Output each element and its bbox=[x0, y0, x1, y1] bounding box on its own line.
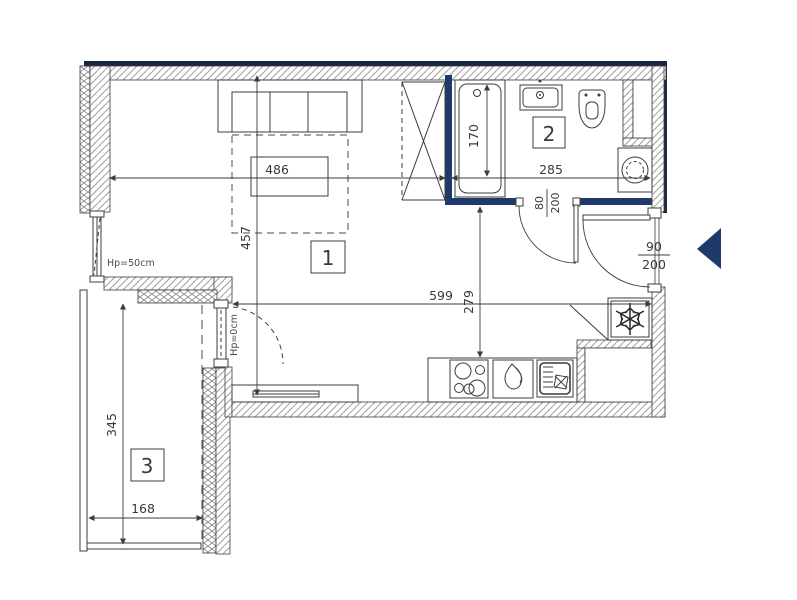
entrance-door-height: 200 bbox=[642, 257, 666, 272]
room-label-2: 2 bbox=[543, 122, 556, 146]
wall-left-insulation bbox=[80, 66, 90, 213]
wall-top bbox=[90, 66, 666, 80]
shaft-niche bbox=[585, 348, 652, 402]
walls bbox=[80, 61, 667, 554]
floor-plan-drawing: 1 2 3 486 285 599 168 457 170 279 345 Hp… bbox=[0, 0, 797, 600]
entrance-arrow-icon bbox=[697, 228, 721, 269]
window-sill-label: Hp=50cm bbox=[107, 258, 155, 269]
bathroom-door-size: 80 200 bbox=[533, 189, 562, 217]
wall-bottom-left-stub bbox=[225, 367, 232, 417]
left-window bbox=[90, 211, 104, 282]
washing-machine bbox=[618, 148, 652, 192]
coffee-table bbox=[251, 157, 328, 196]
wall-bath-pillar-base bbox=[623, 138, 652, 146]
radiator bbox=[232, 385, 358, 402]
wall-niche-top bbox=[577, 340, 651, 348]
bathroom-door bbox=[516, 198, 580, 263]
wall-bathroom-left-navy bbox=[445, 75, 452, 205]
dim-170: 170 bbox=[466, 124, 481, 148]
wall-left bbox=[90, 66, 110, 212]
wardrobe bbox=[402, 82, 445, 200]
dim-279: 279 bbox=[461, 290, 476, 314]
dim-345: 345 bbox=[104, 413, 119, 437]
wall-niche-left bbox=[577, 348, 585, 402]
wall-bottom bbox=[232, 402, 665, 417]
wall-balcony-band bbox=[104, 277, 232, 290]
dim-285: 285 bbox=[539, 162, 563, 177]
wall-balcony-right-insulation bbox=[203, 368, 216, 553]
wall-bathroom-bottom-navy-right bbox=[577, 198, 652, 205]
kitchen-sink-drainer bbox=[537, 360, 573, 397]
dim-599: 599 bbox=[429, 288, 453, 303]
wall-right-lower bbox=[652, 287, 665, 417]
entrance-door-width: 90 bbox=[646, 239, 662, 254]
room-label-3: 3 bbox=[141, 454, 154, 478]
sofa bbox=[218, 80, 362, 132]
cooktop bbox=[450, 360, 488, 398]
wall-top-dark-edge bbox=[84, 61, 666, 66]
wall-bathroom-bottom-navy-left bbox=[445, 198, 517, 205]
balcony-door bbox=[214, 300, 283, 367]
dim-457: 457 bbox=[238, 226, 253, 250]
dim-486: 486 bbox=[265, 162, 289, 177]
wall-bath-pillar bbox=[623, 80, 633, 146]
dimension-lines bbox=[89, 76, 651, 544]
bathroom-door-height: 200 bbox=[549, 193, 562, 214]
floor-plan: 1 2 3 486 285 599 168 457 170 279 345 Hp… bbox=[0, 0, 797, 600]
wall-balcony-insulation bbox=[138, 290, 217, 303]
washbasin bbox=[520, 80, 562, 111]
toilet bbox=[579, 90, 605, 128]
entrance-door-size: 90 200 bbox=[638, 239, 670, 272]
balcony-sill-label: Hp=0cm bbox=[229, 314, 240, 356]
bath-niche bbox=[633, 80, 652, 138]
kitchen-sink-basin bbox=[493, 360, 533, 398]
bathroom-door-width: 80 bbox=[533, 196, 546, 210]
wall-right-upper bbox=[652, 66, 664, 212]
dim-168: 168 bbox=[131, 501, 155, 516]
room-label-1: 1 bbox=[322, 246, 335, 270]
